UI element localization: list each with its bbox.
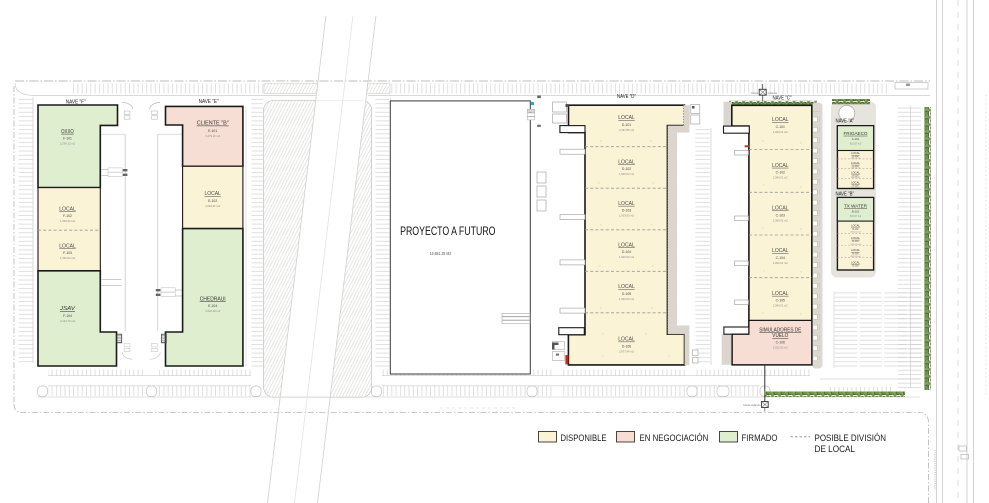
svg-text:LOCAL: LOCAL xyxy=(59,206,76,212)
svg-text:LOCAL: LOCAL xyxy=(618,159,635,165)
svg-text:LOCAL: LOCAL xyxy=(618,115,635,121)
svg-text:E-101: E-101 xyxy=(208,129,217,133)
svg-text:D-101: D-101 xyxy=(622,123,631,127)
svg-text:2,877.94 m2: 2,877.94 m2 xyxy=(619,349,634,353)
svg-text:4,620.39 m2: 4,620.39 m2 xyxy=(205,309,220,313)
svg-text:LOCAL: LOCAL xyxy=(772,291,789,297)
svg-text:FIRMADO: FIRMADO xyxy=(742,433,778,443)
svg-text:2,022.00 m2: 2,022.00 m2 xyxy=(773,345,788,349)
svg-text:D-103: D-103 xyxy=(622,209,631,213)
svg-text:OXXO: OXXO xyxy=(61,129,74,135)
svg-text:1,393.94 m2: 1,393.94 m2 xyxy=(60,256,75,260)
svg-text:3,214.70 m2: 3,214.70 m2 xyxy=(60,319,75,323)
svg-text:D-104: D-104 xyxy=(622,250,631,254)
svg-text:NAVE "A": NAVE "A" xyxy=(836,119,855,125)
svg-text:NAVE "B": NAVE "B" xyxy=(836,191,855,197)
svg-text:3,279.10 m2: 3,279.10 m2 xyxy=(205,134,220,138)
svg-text:E-102: E-102 xyxy=(208,199,217,203)
svg-text:B-106: B-106 xyxy=(852,266,859,268)
svg-text:B-101: B-101 xyxy=(852,210,860,214)
svg-text:C-106: C-106 xyxy=(776,340,785,344)
svg-text:LOCAL: LOCAL xyxy=(618,284,635,290)
svg-text:D-102: D-102 xyxy=(622,167,631,171)
svg-text:1,394.01 m2: 1,394.01 m2 xyxy=(773,304,788,308)
svg-text:B-103: B-103 xyxy=(852,241,859,243)
svg-text:NAVE "D": NAVE "D" xyxy=(617,94,636,100)
svg-text:POSIBLE DIVISIÓN: POSIBLE DIVISIÓN xyxy=(815,433,887,443)
svg-text:B-105: B-105 xyxy=(852,253,859,255)
svg-text:1,393.94 m2: 1,393.94 m2 xyxy=(60,219,75,223)
svg-text:501.87 m2: 501.87 m2 xyxy=(850,215,862,218)
svg-text:F-102: F-102 xyxy=(63,214,72,218)
svg-text:DISPONIBLE: DISPONIBLE xyxy=(561,433,607,443)
svg-text:LOCAL: LOCAL xyxy=(851,224,860,228)
svg-text:LOCAL: LOCAL xyxy=(851,180,860,184)
svg-text:C-103: C-103 xyxy=(776,213,785,217)
svg-text:1,903.63 m2: 1,903.63 m2 xyxy=(619,255,634,259)
svg-text:CHEDRAUI: CHEDRAUI xyxy=(200,296,226,302)
svg-text:1,903.63 m2: 1,903.63 m2 xyxy=(619,297,634,301)
svg-text:F-103: F-103 xyxy=(63,251,72,255)
svg-text:1,903.63 m2: 1,903.63 m2 xyxy=(619,214,634,218)
svg-text:NAVE "C": NAVE "C" xyxy=(773,96,792,102)
svg-text:LOCAL: LOCAL xyxy=(772,163,789,169)
svg-text:1,394.01 m2: 1,394.01 m2 xyxy=(773,130,788,134)
svg-text:2,094.01 m2: 2,094.01 m2 xyxy=(205,204,220,208)
svg-text:16,681.25 M2: 16,681.25 M2 xyxy=(430,251,452,256)
svg-text:EN NEGOCIACIÓN: EN NEGOCIACIÓN xyxy=(640,433,709,443)
svg-text:LOCAL: LOCAL xyxy=(772,206,789,212)
svg-text:LOCAL: LOCAL xyxy=(851,171,860,175)
svg-text:TX WATER: TX WATER xyxy=(844,203,867,208)
svg-text:E-104: E-104 xyxy=(208,304,217,308)
svg-text:C-102: C-102 xyxy=(776,171,785,175)
svg-text:C-101: C-101 xyxy=(776,125,785,129)
svg-text:1,394.01 m2: 1,394.01 m2 xyxy=(773,261,788,265)
svg-text:vigilancia: vigilancia xyxy=(768,93,778,95)
svg-text:PROYECTO A FUTURO: PROYECTO A FUTURO xyxy=(400,224,496,238)
svg-text:CLIENTE "B": CLIENTE "B" xyxy=(197,121,229,127)
svg-text:VUELO: VUELO xyxy=(772,333,788,339)
svg-text:Caseta vigilancia: Caseta vigilancia xyxy=(743,404,761,407)
svg-text:2,467.85 m2: 2,467.85 m2 xyxy=(619,128,634,132)
svg-text:LOCAL: LOCAL xyxy=(772,248,789,254)
svg-text:JSAV: JSAV xyxy=(59,306,77,312)
svg-text:FRIGAECO: FRIGAECO xyxy=(844,131,869,136)
svg-text:Caseta: Caseta xyxy=(751,92,759,95)
svg-text:501.87 m2: 501.87 m2 xyxy=(850,142,862,145)
svg-text:D-106: D-106 xyxy=(622,344,631,348)
svg-text:F-101: F-101 xyxy=(63,137,72,141)
svg-text:LOCAL: LOCAL xyxy=(851,161,860,165)
svg-text:LOCAL: LOCAL xyxy=(618,337,635,343)
svg-text:1,903.63 m2: 1,903.63 m2 xyxy=(619,172,634,176)
svg-text:1,394.01 m2: 1,394.01 m2 xyxy=(773,218,788,222)
svg-text:LOCAL: LOCAL xyxy=(851,151,860,155)
svg-text:NAVE "E": NAVE "E" xyxy=(199,99,219,105)
svg-text:B-102: B-102 xyxy=(852,229,859,231)
svg-text:LOCAL: LOCAL xyxy=(618,201,635,207)
svg-text:C-104: C-104 xyxy=(776,256,785,260)
svg-text:LOCAL: LOCAL xyxy=(204,191,221,197)
svg-text:2,299.12 m2: 2,299.12 m2 xyxy=(60,142,75,146)
svg-text:1,394.01 m2: 1,394.01 m2 xyxy=(773,176,788,180)
svg-text:LOCAL: LOCAL xyxy=(851,236,860,240)
svg-text:A-101: A-101 xyxy=(852,137,860,141)
svg-text:LOCAL: LOCAL xyxy=(59,243,76,249)
svg-text:LOCAL: LOCAL xyxy=(772,117,789,123)
svg-text:LOCAL: LOCAL xyxy=(618,242,635,248)
svg-text:D-105: D-105 xyxy=(622,292,631,296)
svg-text:F-104: F-104 xyxy=(63,314,72,318)
svg-text:LOCAL: LOCAL xyxy=(851,260,860,264)
svg-text:DE LOCAL: DE LOCAL xyxy=(815,444,856,454)
svg-text:251.01 m2: 251.01 m2 xyxy=(851,187,861,189)
svg-text:C-105: C-105 xyxy=(776,299,785,303)
svg-text:LOCAL: LOCAL xyxy=(851,248,860,252)
